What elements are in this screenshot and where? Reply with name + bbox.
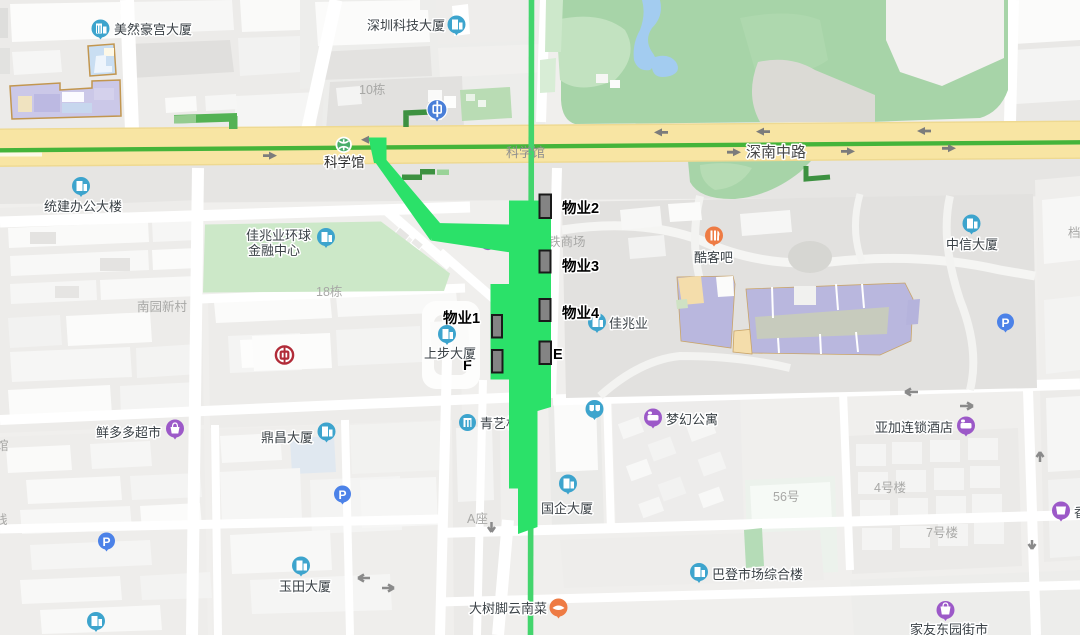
svg-text:科学馆: 科学馆: [506, 145, 545, 160]
svg-text:馆: 馆: [0, 438, 9, 453]
svg-text:物业2: 物业2: [562, 199, 599, 217]
svg-text:佳兆业: 佳兆业: [609, 316, 648, 331]
svg-text:金融中心: 金融中心: [248, 243, 300, 258]
svg-text:梦幻公寓: 梦幻公寓: [666, 412, 718, 427]
svg-text:7号楼: 7号楼: [926, 525, 958, 540]
svg-text:美然豪宫大厦: 美然豪宫大厦: [114, 22, 192, 37]
svg-text:物业3: 物业3: [562, 257, 599, 275]
svg-text:鼎昌大厦: 鼎昌大厦: [261, 430, 313, 445]
svg-text:4号楼: 4号楼: [874, 480, 906, 495]
svg-text:家友东园街市: 家友东园街市: [910, 622, 988, 635]
svg-text:中信大厦: 中信大厦: [946, 237, 998, 252]
svg-text:大树脚云南菜: 大树脚云南菜: [469, 601, 547, 616]
svg-text:南园新村: 南园新村: [137, 299, 188, 314]
svg-text:P: P: [103, 535, 111, 549]
svg-text:科学馆: 科学馆: [324, 155, 365, 170]
svg-text:E: E: [553, 347, 563, 363]
svg-text:玉田大厦: 玉田大厦: [279, 579, 331, 594]
svg-text:巴登市场综合楼: 巴登市场综合楼: [712, 567, 803, 582]
svg-text:10栋: 10栋: [359, 82, 385, 97]
svg-text:P: P: [339, 488, 347, 502]
svg-text:亚加连锁酒店: 亚加连锁酒店: [875, 420, 953, 435]
svg-text:深圳科技大厦: 深圳科技大厦: [367, 18, 445, 33]
svg-text:深南中路: 深南中路: [746, 144, 806, 161]
svg-text:56号: 56号: [773, 490, 799, 504]
svg-text:鲜多多超市: 鲜多多超市: [96, 425, 161, 440]
svg-text:P: P: [1002, 316, 1010, 330]
svg-text:上步大厦: 上步大厦: [424, 346, 476, 361]
svg-text:档: 档: [1068, 226, 1080, 240]
svg-text:铁商场: 铁商场: [548, 234, 586, 249]
svg-text:佳兆业环球: 佳兆业环球: [246, 228, 311, 243]
svg-text:香: 香: [1074, 505, 1080, 520]
svg-text:物业1: 物业1: [443, 309, 480, 327]
svg-text:18栋: 18栋: [316, 284, 342, 299]
svg-text:酷客吧: 酷客吧: [694, 250, 733, 265]
svg-text:A座: A座: [467, 511, 488, 526]
svg-text:国企大厦: 国企大厦: [541, 501, 593, 516]
svg-text:物业4: 物业4: [562, 304, 599, 322]
svg-text:统建办公大楼: 统建办公大楼: [44, 199, 122, 214]
svg-text:线: 线: [0, 513, 8, 527]
